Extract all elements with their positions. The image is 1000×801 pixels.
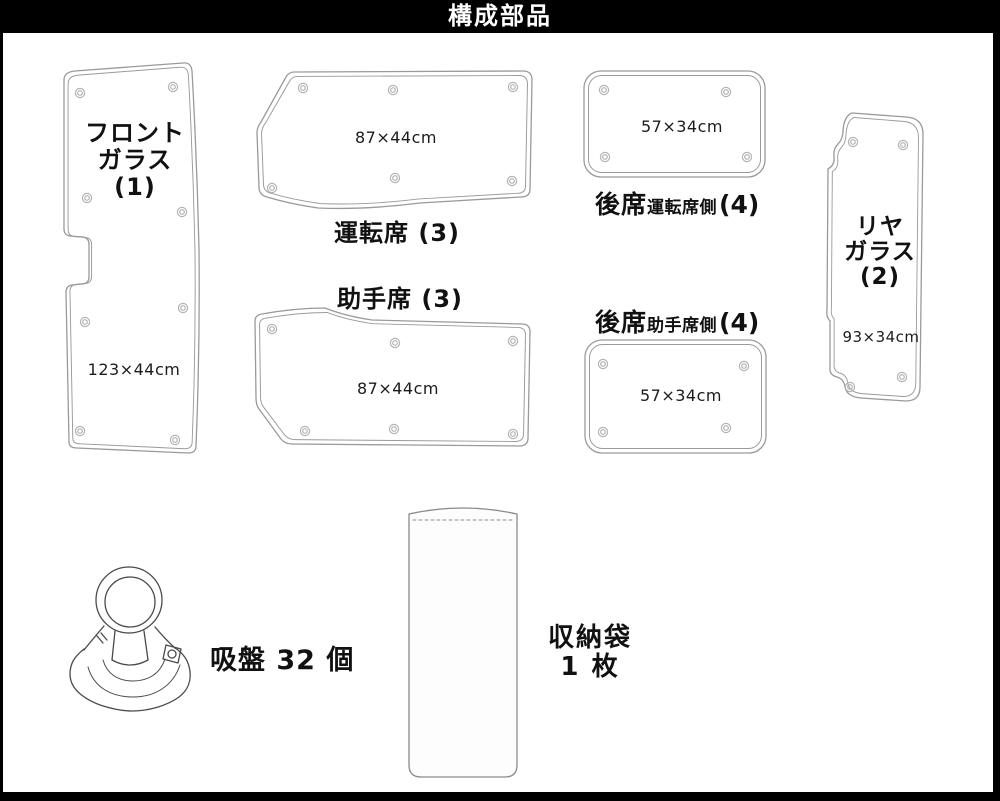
- storage-bag-label-line1: 収納袋: [535, 624, 645, 653]
- rear-seat-passenger-label: 後席 助手席側 (4): [595, 303, 759, 339]
- rear-glass-size: 93×34cm: [831, 328, 931, 346]
- front-glass-name: フロント ガラス (1): [75, 120, 195, 201]
- rear-glass-name-line3: (2): [830, 265, 930, 290]
- page-title: 構成部品: [0, 0, 1000, 33]
- rear-seat-driver-size: 57×34cm: [632, 117, 732, 136]
- frame-border-left: [0, 0, 3, 801]
- rear-seat-passenger-label-count: (4): [719, 308, 759, 337]
- driver-seat-label: 運転席 (3): [327, 213, 467, 248]
- rear-glass-name-line1: リヤ: [830, 215, 930, 240]
- frame-border-bottom: [0, 792, 1000, 801]
- front-glass-name-line3: (1): [75, 174, 195, 201]
- storage-bag-label: 収納袋 1 枚: [535, 624, 645, 682]
- front-glass-name-line1: フロント: [75, 120, 195, 147]
- rear-seat-driver-label-count: (4): [719, 190, 759, 219]
- front-glass-size: 123×44cm: [84, 360, 184, 379]
- frame-border-right: [993, 0, 1000, 801]
- passenger-seat-label: 助手席 (3): [330, 279, 470, 314]
- front-glass-name-line2: ガラス: [75, 147, 195, 174]
- suction-cup-label: 吸盤 32 個: [210, 638, 354, 677]
- rear-seat-passenger-label-sub: 助手席側: [647, 311, 717, 336]
- passenger-seat-shape: [255, 308, 530, 446]
- rear-seat-passenger-label-main: 後席: [595, 303, 647, 339]
- rear-seat-driver-label: 後席 運転席側 (4): [595, 185, 759, 221]
- rear-glass-name-line2: ガラス: [830, 240, 930, 265]
- suction-cup-illustration: [70, 567, 190, 711]
- rear-seat-driver-label-sub: 運転席側: [647, 193, 717, 218]
- storage-bag-illustration: [409, 508, 517, 777]
- rear-glass-name: リヤ ガラス (2): [830, 215, 930, 290]
- passenger-seat-size: 87×44cm: [348, 379, 448, 398]
- driver-seat-size: 87×44cm: [346, 128, 446, 147]
- rear-seat-driver-label-main: 後席: [595, 185, 647, 221]
- rear-seat-passenger-size: 57×34cm: [631, 386, 731, 405]
- components-diagram-page: 構成部品 フロント ガラス (1) 123×44cm 87×44cm 運転席 (…: [0, 0, 1000, 801]
- storage-bag-label-line2: 1 枚: [535, 653, 645, 682]
